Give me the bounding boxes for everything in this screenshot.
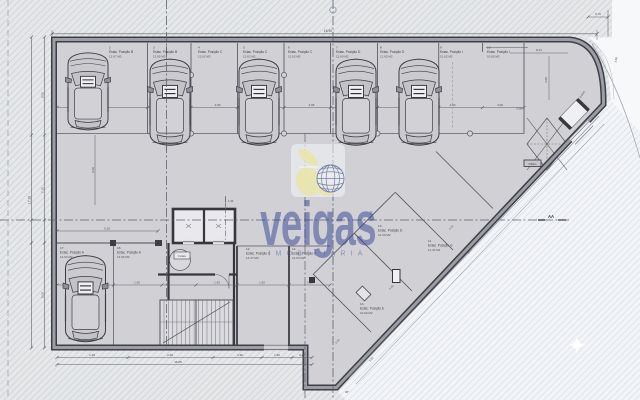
svg-text:Estac. Posição C: Estac. Posição C	[243, 50, 268, 54]
svg-text:Estac. Posição D: Estac. Posição D	[378, 229, 403, 233]
svg-text:13: 13	[360, 302, 364, 306]
svg-text:5.00: 5.00	[41, 292, 45, 298]
svg-text:5.10: 5.10	[104, 227, 110, 231]
svg-text:10.65 M2: 10.65 M2	[487, 55, 500, 59]
svg-text:Estac. Posição G: Estac. Posição G	[428, 244, 453, 248]
svg-text:2.90: 2.90	[215, 103, 221, 107]
svg-text:16.90: 16.90	[324, 29, 332, 33]
svg-text:Estac. Posição B: Estac. Posição B	[109, 50, 133, 54]
svg-text:12.62 M2: 12.62 M2	[440, 55, 453, 59]
svg-text:ITRxbo: ITRxbo	[529, 163, 537, 166]
svg-text:2.40: 2.40	[167, 353, 173, 357]
svg-text:Estac. Posição A: Estac. Posição A	[117, 251, 142, 255]
svg-text:8: 8	[380, 46, 382, 50]
svg-text:7: 7	[336, 46, 338, 50]
svg-text:Estac. Posição I: Estac. Posição I	[487, 50, 510, 54]
svg-text:Estac. Posição D: Estac. Posição D	[336, 50, 361, 54]
svg-text:Estac. Posição B: Estac. Posição B	[153, 50, 177, 54]
svg-text:4: 4	[198, 46, 200, 50]
svg-text:17.10: 17.10	[28, 196, 32, 204]
svg-text:5: 5	[243, 46, 245, 50]
svg-text:12.67 M2: 12.67 M2	[109, 55, 122, 59]
svg-text:AA: AA	[548, 214, 554, 219]
svg-text:12.62 M2: 12.62 M2	[198, 55, 211, 59]
svg-text:1.50: 1.50	[134, 281, 140, 285]
svg-text:3.00: 3.00	[497, 103, 503, 107]
svg-text:Estac. Posição C: Estac. Posição C	[198, 50, 223, 54]
svg-text:IMOBILIÁRIA: IMOBILIÁRIA	[268, 249, 367, 258]
svg-text:Estac. Posição D: Estac. Posição D	[380, 50, 405, 54]
svg-text:10.60 M2: 10.60 M2	[360, 311, 373, 315]
svg-text:®: ®	[369, 210, 373, 217]
svg-text:7.10: 7.10	[41, 187, 45, 193]
svg-text:1.93: 1.93	[214, 281, 220, 285]
svg-text:14.60 M2: 14.60 M2	[117, 255, 130, 259]
svg-text:Estac. Posição I: Estac. Posição I	[440, 50, 463, 54]
svg-text:18: 18	[117, 246, 121, 250]
svg-text:1.50: 1.50	[259, 281, 265, 285]
svg-text:17: 17	[60, 246, 64, 250]
svg-text:3.08: 3.08	[516, 107, 522, 111]
svg-text:9: 9	[440, 46, 442, 50]
svg-text:5.00: 5.00	[41, 92, 45, 98]
svg-text:2: 2	[109, 46, 111, 50]
svg-text:3.00: 3.00	[544, 77, 548, 83]
svg-text:2.95: 2.95	[309, 103, 315, 107]
svg-text:14.47 M2: 14.47 M2	[246, 256, 259, 260]
svg-text:12.40 M2: 12.40 M2	[378, 233, 391, 237]
svg-text:6: 6	[288, 46, 290, 50]
svg-text:14.60 M2: 14.60 M2	[60, 255, 73, 259]
svg-text:12.92 M2: 12.92 M2	[288, 55, 301, 59]
svg-text:12.60 M2: 12.60 M2	[336, 55, 349, 59]
svg-text:11: 11	[428, 239, 431, 243]
svg-text:8.41: 8.41	[536, 48, 542, 52]
svg-text:Estac. Posição E: Estac. Posição E	[360, 307, 384, 311]
svg-text:Estac. Posição A: Estac. Posição A	[60, 251, 85, 255]
svg-text:Cx Elev: Cx Elev	[178, 256, 187, 258]
svg-text:1.50: 1.50	[274, 353, 280, 357]
svg-text:12.95 M2: 12.95 M2	[153, 55, 166, 59]
svg-text:12.65 M2: 12.65 M2	[380, 55, 393, 59]
svg-text:10: 10	[487, 46, 491, 50]
svg-text:1.45: 1.45	[89, 353, 95, 357]
svg-text:45°: 45°	[345, 390, 349, 394]
svg-text:10: 10	[378, 224, 382, 228]
svg-text:0.90: 0.90	[91, 167, 95, 173]
svg-text:16.05: 16.05	[174, 360, 182, 364]
svg-text:11.40 M2: 11.40 M2	[428, 248, 441, 252]
svg-text:1.30: 1.30	[228, 199, 234, 203]
svg-text:0.20: 0.20	[299, 353, 305, 357]
svg-text:1.90: 1.90	[237, 353, 243, 357]
svg-text:3: 3	[153, 46, 155, 50]
svg-text:veigas: veigas	[260, 189, 376, 259]
svg-text:12: 12	[246, 247, 250, 251]
svg-text:6.70: 6.70	[595, 12, 601, 16]
svg-text:Estac. Posição C: Estac. Posição C	[288, 50, 313, 54]
svg-text:12.62 M2: 12.62 M2	[243, 55, 256, 59]
